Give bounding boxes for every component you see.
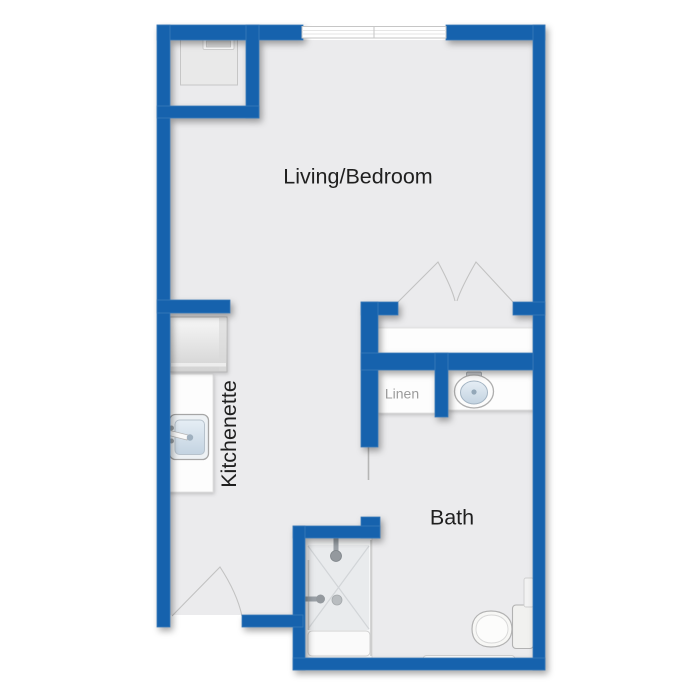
kitchenette-label: Kitchenette [217,380,241,488]
linen-label: Linen [385,386,419,402]
shower-top-wall [293,526,380,538]
utility-closet-right-wall [246,25,259,118]
utility-closet-bottom-wall [157,106,259,118]
wall-right [533,25,545,670]
bath-bottom-wall [293,658,545,670]
kitchen-sink [169,415,209,460]
living-bottom-wall [242,615,303,627]
shower-bench [308,631,370,656]
wall-mounted-fixture [524,578,534,607]
kitchenette-wall-stub [157,300,230,313]
toilet-tank [513,605,534,649]
shower-valve [316,595,325,604]
shower-head [331,551,342,562]
shower [305,538,372,658]
living-bedroom-label: Living/Bedroom [283,165,432,189]
sink-drain [187,434,193,440]
floorplan-drawing: Living/Bedroom Kitchenette Bath Linen [0,0,700,700]
water-heater-unit [181,37,238,85]
shower-left-wall [293,526,305,670]
wall-top-right [446,25,545,40]
closet-front-wall-right [513,302,545,315]
hall-wall-vertical [361,302,378,447]
bath-label: Bath [430,506,474,530]
linen-divider-wall [435,353,448,417]
closet-shelf [378,328,533,354]
sink-drain [471,389,476,394]
floorplan-canvas: Living/Bedroom Kitchenette Bath Linen [0,0,700,700]
refrigerator [170,317,227,372]
wall-top-left [157,25,303,40]
shower-drain [332,595,342,605]
window [302,27,446,39]
